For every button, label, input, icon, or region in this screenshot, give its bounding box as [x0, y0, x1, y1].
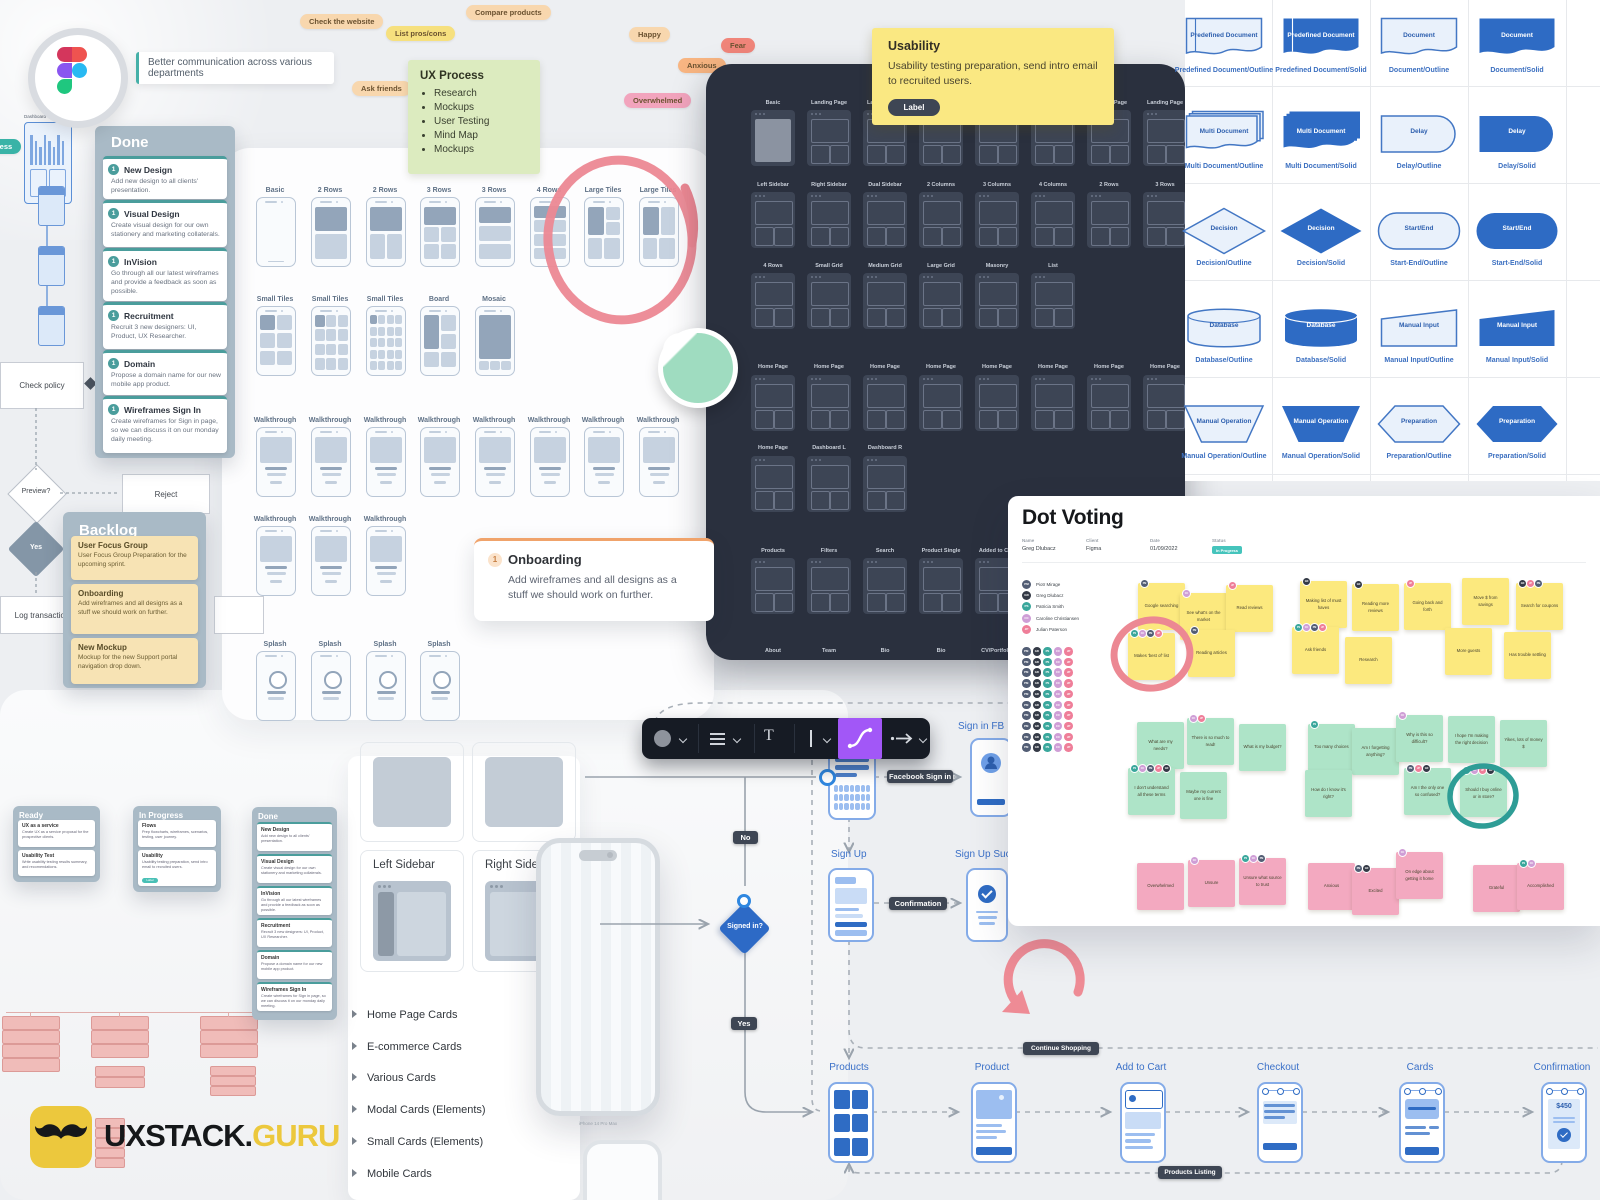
sitemap-node[interactable] — [2, 1044, 60, 1058]
flow-screen-confirmation[interactable]: $450 — [1541, 1082, 1587, 1163]
vote-dot[interactable]: PM — [1022, 722, 1031, 731]
status-bar — [265, 655, 276, 657]
vote-dot[interactable]: JP — [1064, 733, 1073, 742]
status-bar — [320, 201, 331, 203]
vote-dot[interactable]: PM — [1022, 711, 1031, 720]
wire-block — [441, 244, 456, 259]
flow-pill-no[interactable]: No — [733, 831, 758, 844]
dark-wireframe-thumb-filters[interactable] — [807, 558, 851, 614]
sticky-note-communication[interactable]: Better communication across various depa… — [136, 52, 334, 84]
shape-caption: Preparation/Outline — [1387, 453, 1452, 460]
dark-wireframe-thumb-home-page[interactable] — [1031, 375, 1075, 431]
shape-label: Document — [1472, 32, 1562, 39]
wire-block — [811, 384, 850, 408]
shape-caption: Decision/Outline — [1196, 260, 1251, 267]
dark-wireframe-thumb-masonry[interactable] — [975, 273, 1019, 329]
sticky-note-green[interactable]: Too many choices — [1308, 724, 1355, 771]
shape-caption: Manual Input/Solid — [1486, 357, 1548, 364]
sticky-note-pink[interactable]: On edge about getting it home — [1396, 852, 1443, 899]
backlog-card[interactable]: New MockupMockup for the new Support por… — [71, 638, 198, 684]
flow-node-connector[interactable] — [819, 769, 836, 786]
flow-pill-products-listing[interactable]: Products Listing — [1158, 1166, 1222, 1179]
vote-dot[interactable]: JP — [1064, 701, 1073, 710]
wireframe-thumb-2-rows[interactable] — [311, 197, 351, 267]
sitemap-node[interactable] — [210, 1066, 256, 1076]
vote-dot[interactable]: GD — [1033, 701, 1042, 710]
flowchart-shape-maninput-solid[interactable]: Manual Input — [1472, 304, 1562, 352]
sticky-note-pink[interactable]: Anxious — [1308, 863, 1355, 910]
sticky-note-green[interactable]: Why is this so difficult? — [1396, 715, 1443, 762]
mini-card[interactable]: DomainPropose a domain name for our new … — [257, 950, 332, 979]
flowchart-shape-predefined-outline[interactable]: Predefined Document — [1179, 14, 1269, 62]
key — [866, 785, 870, 792]
mini-card-title: Recruitment — [261, 923, 328, 929]
line-tool-icon[interactable] — [810, 730, 812, 747]
flow-pill-facebook-sign-in[interactable]: Facebook Sign in — [887, 770, 953, 783]
wireframe-thumb-walkthrough[interactable] — [584, 427, 624, 497]
sticky-note-yellow[interactable]: Makes 'best of' list — [1128, 633, 1175, 680]
sticky-note-green[interactable]: Yikes, lots of money $ — [1500, 720, 1547, 767]
usability-note[interactable]: Usability Usability testing preparation,… — [872, 28, 1114, 125]
status-dot — [391, 201, 393, 203]
vote-dot[interactable]: PS — [1043, 701, 1052, 710]
sticky-note-green[interactable]: I don't understand all these terms — [1128, 768, 1175, 815]
wireframe-thumb-small-tiles[interactable] — [256, 306, 296, 376]
wireframe-thumb-small-tiles[interactable] — [311, 306, 351, 376]
vote-dot[interactable]: PS — [1043, 679, 1052, 688]
stepper-dot — [1293, 1088, 1300, 1095]
flowchart-shape-decision-solid[interactable]: Decision — [1276, 207, 1366, 255]
menu-item-various-cards[interactable]: Various Cards — [352, 1072, 436, 1084]
menu-item-home-page-cards[interactable]: Home Page Cards — [352, 1009, 458, 1021]
vote-dot[interactable]: PM — [1022, 690, 1031, 699]
ux-process-note[interactable]: UX Process ResearchMockupsUser TestingMi… — [408, 60, 540, 174]
sitemap-node[interactable] — [210, 1076, 256, 1086]
dark-wireframe-thumb-home-page[interactable] — [807, 375, 851, 431]
flowchart-shape-document-solid[interactable]: Document — [1472, 14, 1562, 62]
dark-wireframe-thumb-product-single[interactable] — [919, 558, 963, 614]
wireframe-thumb-walkthrough[interactable] — [366, 427, 406, 497]
wireframe-thumb-small-tiles[interactable] — [366, 306, 406, 376]
done-card[interactable]: 1RecruitmentRecruit 3 new designers: UI,… — [103, 302, 227, 349]
wire-block — [923, 567, 962, 591]
flowchart-shape-multidoc-outline[interactable]: Multi Document — [1179, 110, 1269, 158]
flow-pill-continue-shopping[interactable]: Continue Shopping — [1023, 1042, 1099, 1055]
flowchart-shape-document-outline[interactable]: Document — [1374, 14, 1464, 62]
wire-block — [1054, 145, 1074, 164]
vote-dot[interactable]: JP — [1064, 743, 1073, 752]
sticky-note-green[interactable]: Am I forgetting anything? — [1352, 728, 1399, 775]
wireframe-thumb-walkthrough[interactable] — [420, 427, 460, 497]
flowchart-shape-multidoc-solid[interactable]: Multi Document — [1276, 110, 1366, 158]
flowchart-shape-database-solid[interactable]: Database — [1276, 304, 1366, 352]
dark-wireframe-thumb-large-grid[interactable] — [919, 273, 963, 329]
dark-wireframe-thumb-home-page[interactable] — [919, 375, 963, 431]
tag-check-website[interactable]: Check the website — [300, 14, 383, 29]
done-card[interactable]: 1Wireframes Sign InCreate wireframes for… — [103, 396, 227, 453]
wire-block — [942, 593, 962, 612]
dark-wireframe-thumb-3-columns[interactable] — [975, 192, 1019, 248]
flow-screen-checkout[interactable] — [1257, 1082, 1303, 1163]
flowchart-shape-database-outline[interactable]: Database — [1179, 304, 1269, 352]
card-title: Domain — [124, 359, 155, 369]
wireframe-thumb-splash[interactable] — [256, 651, 296, 721]
wireframe-thumb-walkthrough[interactable] — [366, 526, 406, 596]
check-policy-node[interactable]: Check policy — [0, 362, 84, 409]
dark-wireframe-thumb-dashboard-l[interactable] — [807, 456, 851, 512]
status-bar — [265, 201, 276, 203]
sitemap-node[interactable] — [91, 1016, 149, 1030]
product-tile — [852, 1138, 868, 1156]
text-tool-icon[interactable]: T — [764, 727, 774, 745]
vote-dot[interactable]: GD — [1033, 647, 1042, 656]
sticky-note-green[interactable]: I hope I'm making the right decision — [1448, 716, 1495, 763]
sitemap-node[interactable] — [95, 1158, 125, 1168]
wireframe-thumb-splash[interactable] — [311, 651, 351, 721]
vote-dot[interactable]: PS — [1043, 658, 1052, 667]
vote-dot[interactable]: JP — [1064, 679, 1073, 688]
sticky-note-yellow[interactable]: Ask friends — [1292, 627, 1339, 674]
menu-item-mobile-cards[interactable]: Mobile Cards — [352, 1168, 432, 1180]
vote-dot[interactable]: GD — [1033, 668, 1042, 677]
vote-dot[interactable]: JP — [1064, 658, 1073, 667]
dark-wireframe-thumb-4-columns[interactable] — [1031, 192, 1075, 248]
product-tile — [834, 1114, 850, 1132]
vote-dot[interactable]: PS — [1043, 743, 1052, 752]
sticky-note-green[interactable]: Should I buy online or in store? — [1460, 770, 1507, 817]
dark-wireframe-label: Landing Page — [811, 100, 847, 106]
dark-wireframe-thumb-list[interactable] — [1031, 273, 1075, 329]
cards-grid-cell-left-sidebar[interactable]: Left Sidebar — [360, 850, 464, 972]
vote-dot[interactable]: CC — [1054, 647, 1063, 656]
mini-card[interactable]: FlowsPrep flowcharts, wireframes, scenar… — [138, 820, 216, 847]
tag-compare-products[interactable]: Compare products — [466, 5, 551, 20]
onboarding-note[interactable]: 1OnboardingAdd wireframes and all design… — [474, 538, 714, 621]
menu-item-small-cards-elements-[interactable]: Small Cards (Elements) — [352, 1136, 483, 1148]
sticky-note-green[interactable]: Am I the only one so confused? — [1404, 768, 1451, 815]
mini-card[interactable]: New DesignAdd new design to all clients'… — [257, 822, 332, 851]
wire-block — [322, 473, 341, 476]
wire-block — [923, 201, 962, 225]
backlog-card[interactable]: OnboardingAdd wireframes and all designs… — [71, 584, 198, 634]
tag-ask-friends[interactable]: Ask friends — [352, 81, 411, 96]
card-number-badge: 1 — [108, 208, 119, 219]
dark-wireframe-thumb-medium-grid[interactable] — [863, 273, 907, 329]
vote-dot[interactable]: PM — [1022, 658, 1031, 667]
participant-avatar: PM — [1022, 580, 1031, 589]
wireframe-thumb-walkthrough[interactable] — [475, 427, 515, 497]
wire-block — [755, 282, 794, 306]
sticky-note-yellow[interactable]: Research — [1345, 637, 1392, 684]
cancel-node[interactable] — [214, 596, 264, 634]
status-dot — [336, 201, 338, 203]
vote-dot[interactable]: PS — [1043, 668, 1052, 677]
sticky-note-yellow[interactable]: Going back and forth — [1404, 583, 1451, 630]
wire-block — [811, 282, 850, 306]
sticky-note-green[interactable]: What are my needs? — [1137, 722, 1184, 769]
vote-dot[interactable]: JP — [1064, 668, 1073, 677]
sitemap-node[interactable] — [2, 1016, 60, 1030]
sticky-note-pink[interactable]: Unsure what source to trust — [1239, 858, 1286, 905]
sticky-note-green[interactable]: How do I know it's right? — [1305, 770, 1352, 817]
vote-dot[interactable]: GD — [1033, 733, 1042, 742]
dark-wireframe-thumb-products[interactable] — [751, 558, 795, 614]
wireframe-thumb-basic[interactable] — [256, 197, 296, 267]
dark-wireframe-label: Dashboard L — [812, 445, 846, 451]
flowchart-shape-preparation-solid[interactable]: Preparation — [1472, 400, 1562, 448]
iphone-mockup-partial[interactable] — [583, 1140, 662, 1200]
wireframe-thumb-mosaic[interactable] — [475, 306, 515, 376]
flow-pill-yes[interactable]: Yes — [731, 1017, 757, 1030]
dark-wireframe-thumb-dual-sidebar[interactable] — [863, 192, 907, 248]
done-card[interactable]: 1DomainPropose a domain name for our new… — [103, 350, 227, 395]
vote-dot[interactable]: GD — [1033, 679, 1042, 688]
brand-black: UXSTACK. — [104, 1118, 252, 1153]
sticky-note-pink[interactable]: Unsure — [1188, 860, 1235, 907]
dark-wireframe-thumb-2-columns[interactable] — [919, 192, 963, 248]
backlog-card[interactable]: User Focus GroupUser Focus Group Prepara… — [71, 536, 198, 580]
flowchart-shape-startend-outline[interactable]: Start/End — [1374, 207, 1464, 255]
flowchart-shape-maninput-outline[interactable]: Manual Input — [1374, 304, 1464, 352]
vote-dot[interactable]: PS — [1043, 733, 1052, 742]
chevron-down-icon[interactable] — [823, 735, 831, 743]
sticky-note-yellow[interactable]: Search for coupons — [1516, 583, 1563, 630]
figma-toolbar[interactable]: T — [642, 718, 930, 759]
tag-happy[interactable]: Happy — [629, 27, 670, 42]
cards-grid-cell[interactable] — [472, 742, 576, 842]
dark-wireframe-thumb-left-sidebar[interactable] — [751, 192, 795, 248]
status-dot — [500, 310, 502, 312]
iphone-mockup[interactable] — [536, 838, 660, 1116]
curve-tool-active[interactable] — [838, 718, 882, 759]
done-column-title: Done — [111, 134, 149, 151]
reject-node[interactable]: Reject — [122, 474, 210, 514]
chevron-down-icon[interactable] — [733, 735, 741, 743]
mini-screen-wireframe[interactable] — [38, 186, 65, 226]
dark-wireframe-thumb-basic[interactable] — [751, 110, 795, 166]
mini-screen-wireframe[interactable] — [38, 246, 65, 286]
shape-label: Manual Input — [1374, 322, 1464, 329]
chart-bar — [57, 135, 60, 165]
flowchart-shape-decision-outline[interactable]: Decision — [1179, 207, 1269, 255]
vote-dot[interactable]: PM — [1022, 743, 1031, 752]
wire-block — [755, 201, 794, 225]
sitemap-node[interactable] — [95, 1077, 145, 1088]
mini-card[interactable]: Usability TestWrite usability testing re… — [18, 850, 95, 876]
red-circle-annotation[interactable] — [535, 148, 705, 333]
sticky-note-yellow[interactable]: Has trouble settling — [1504, 632, 1551, 679]
dark-wireframe-thumb-4-rows[interactable] — [751, 273, 795, 329]
dark-wireframe-thumb-home-page[interactable] — [751, 375, 795, 431]
image — [1125, 1112, 1160, 1129]
sticky-note-pink[interactable]: Accomplished — [1517, 863, 1564, 910]
vote-dot[interactable]: PS — [1043, 722, 1052, 731]
done-card[interactable]: 1New DesignAdd new design to all clients… — [103, 156, 227, 199]
wireframe-thumb-2-rows[interactable] — [366, 197, 406, 267]
tag-process[interactable]: Process — [0, 139, 21, 154]
fill-color-swatch[interactable] — [654, 730, 671, 747]
wire-block — [998, 308, 1018, 327]
wireframe-thumb-splash[interactable] — [420, 651, 460, 721]
flowchart-shape-manop-outline[interactable]: Manual Operation — [1179, 400, 1269, 448]
vote-dot[interactable]: JP — [1064, 690, 1073, 699]
dark-wireframe-thumb-home-page[interactable] — [863, 375, 907, 431]
vote-dot[interactable]: PS — [1043, 711, 1052, 720]
flowchart-shape-manop-solid[interactable]: Manual Operation — [1276, 400, 1366, 448]
tag-fear[interactable]: Fear — [721, 38, 755, 53]
vote-dot[interactable]: PS — [1043, 647, 1052, 656]
sticky-note-yellow[interactable]: Reading articles — [1188, 630, 1235, 677]
sticky-note-yellow[interactable]: More guests — [1445, 628, 1492, 675]
sitemap-node[interactable] — [91, 1030, 149, 1044]
sticky-note-green[interactable]: Maybe my current one is fine — [1180, 772, 1227, 819]
vote-dot[interactable]: CC — [1054, 679, 1063, 688]
dark-wireframe-thumb-small-grid[interactable] — [807, 273, 851, 329]
wire-block — [867, 227, 887, 246]
vote-dot[interactable]: GD — [1033, 743, 1042, 752]
vote-dot[interactable]: PM — [1022, 733, 1031, 742]
wireframe-thumb-walkthrough[interactable] — [256, 526, 296, 596]
menu-item-modal-cards-elements-[interactable]: Modal Cards (Elements) — [352, 1104, 486, 1116]
sitemap-node[interactable] — [2, 1058, 60, 1072]
flowchart-shape-delay-solid[interactable]: Delay — [1472, 110, 1562, 158]
vote-dot[interactable]: JP — [1064, 647, 1073, 656]
dark-wireframe-thumb-right-sidebar[interactable] — [807, 192, 851, 248]
mini-card[interactable]: InVisionGo through all our latest wirefr… — [257, 886, 332, 915]
sticky-note-yellow[interactable]: Read reviews — [1226, 585, 1273, 632]
wireframe-thumb-3-rows[interactable] — [475, 197, 515, 267]
vote-dot[interactable]: PM — [1022, 679, 1031, 688]
vote-dot[interactable]: CC — [1054, 743, 1063, 752]
stroke-style-icon[interactable] — [710, 733, 725, 735]
flow-screen-cards[interactable] — [1399, 1082, 1445, 1163]
figma-canvas[interactable]: Basic2 Rows2 Rows3 Rows3 Rows4 RowsLarge… — [0, 0, 1600, 1200]
cards-grid-cell[interactable] — [360, 742, 464, 842]
flowchart-shape-predefined-solid[interactable]: Predefined Document — [1276, 14, 1366, 62]
stroke-style-icon[interactable] — [710, 743, 725, 745]
dark-wireframe-thumb-search[interactable] — [863, 558, 907, 614]
wireframe-thumb-walkthrough[interactable] — [639, 427, 679, 497]
flow-screen-sign-up-success[interactable] — [966, 868, 1008, 942]
dark-wireframe-thumb-home-page[interactable] — [975, 375, 1019, 431]
label-pill[interactable]: Label — [888, 99, 940, 116]
flow-node-diamond-top[interactable] — [737, 894, 751, 908]
dark-wireframe-thumb-2-rows[interactable] — [1087, 192, 1131, 248]
flowchart-shape-preparation-outline[interactable]: Preparation — [1374, 400, 1464, 448]
shape-label: Decision — [1276, 225, 1366, 232]
sitemap-node[interactable] — [200, 1016, 258, 1030]
wireframe-thumb-board[interactable] — [420, 306, 460, 376]
cell-preview — [373, 881, 451, 961]
sitemap-node[interactable] — [91, 1044, 149, 1058]
sitemap-node[interactable] — [200, 1030, 258, 1044]
avatar-body — [985, 763, 997, 769]
dark-wireframe-thumb-home-page[interactable] — [1087, 375, 1131, 431]
flow-screen-add-to-cart[interactable] — [1120, 1082, 1166, 1163]
vote-dot[interactable]: PM — [1022, 668, 1031, 677]
sticky-note-green[interactable]: There is so much to read! — [1187, 718, 1234, 765]
wireframe-thumb-walkthrough[interactable] — [311, 427, 351, 497]
mini-card[interactable]: UX as a serviceCreate UX as a service pr… — [18, 820, 95, 847]
chevron-down-icon[interactable] — [919, 735, 927, 743]
sticky-note-yellow[interactable]: Reading more reviews — [1352, 584, 1399, 631]
mini-card[interactable]: Wireframes Sign InCreate wireframes for … — [257, 982, 332, 1011]
browser-dots — [811, 459, 813, 461]
flow-pill-confirmation[interactable]: Confirmation — [889, 897, 947, 910]
dark-wireframe-label: Search — [876, 548, 894, 554]
vote-dot[interactable]: JP — [1064, 711, 1073, 720]
vote-dot-on-note: CC — [1398, 848, 1407, 857]
done-card[interactable]: 1InVisionGo through all our latest wiref… — [103, 248, 227, 301]
sitemap-node[interactable] — [210, 1086, 256, 1096]
vote-dot[interactable]: PM — [1022, 647, 1031, 656]
dark-wireframe-thumb-dashboard-r[interactable] — [863, 456, 907, 512]
vote-dot[interactable]: PS — [1043, 690, 1052, 699]
sticky-note-yellow[interactable]: Google searching — [1138, 583, 1185, 630]
vote-dot[interactable]: CC — [1054, 668, 1063, 677]
chevron-down-icon[interactable] — [679, 735, 687, 743]
stroke-style-icon[interactable] — [710, 738, 725, 740]
sticky-note-yellow[interactable]: Making list of must haves — [1300, 581, 1347, 628]
wire-block — [387, 361, 394, 370]
sitemap-node[interactable] — [2, 1030, 60, 1044]
vote-dot-on-note: JP — [1228, 581, 1237, 590]
vote-dot[interactable]: CC — [1054, 711, 1063, 720]
vote-dot[interactable]: PM — [1022, 701, 1031, 710]
sticky-note-green[interactable]: What is my budget? — [1239, 724, 1286, 771]
arrow-tool-icon[interactable] — [890, 730, 916, 747]
flowchart-shape-startend-solid[interactable]: Start/End — [1472, 207, 1562, 255]
done-card[interactable]: 1Visual DesignCreate visual design for o… — [103, 200, 227, 247]
mini-label-pill[interactable]: Label — [142, 878, 158, 883]
wire-block — [998, 410, 1018, 429]
sitemap-node[interactable] — [95, 1066, 145, 1077]
sticky-note-pink[interactable]: Overwhelmed — [1137, 863, 1184, 910]
sticky-note-yellow[interactable]: Move $ from savings — [1462, 578, 1509, 625]
wire-block — [867, 201, 906, 225]
mini-card[interactable]: RecruitmentRecruit 3 new designers: UI, … — [257, 918, 332, 947]
mini-dashboard-label: Dashboard — [24, 114, 46, 119]
dark-wireframe-thumb-home-page[interactable] — [751, 456, 795, 512]
flow-screen-sign-in-fb[interactable] — [970, 738, 1012, 817]
wireframe-thumb-3-rows[interactable] — [420, 197, 460, 267]
wireframe-thumb-walkthrough[interactable] — [256, 427, 296, 497]
wireframe-thumb-walkthrough[interactable] — [530, 427, 570, 497]
tag-overwhelmed[interactable]: Overwhelmed — [624, 93, 691, 108]
tag-list-pros-cons[interactable]: List pros/cons — [386, 26, 455, 41]
dark-wireframe-thumb-landing-page[interactable] — [807, 110, 851, 166]
flow-screen-sign-up[interactable] — [828, 868, 874, 942]
mini-card[interactable]: UsabilityUsability testing preparation, … — [138, 850, 216, 886]
sticky-note-pink[interactable]: Excited — [1352, 868, 1399, 915]
wire-block — [886, 308, 906, 327]
browser-dots — [923, 276, 925, 278]
status-dot — [609, 431, 611, 433]
wireframe-thumb-walkthrough[interactable] — [311, 526, 351, 596]
browser-dots — [1091, 378, 1093, 380]
flow-screen-product[interactable] — [971, 1082, 1017, 1163]
mini-screen-wireframe[interactable] — [38, 306, 65, 346]
sticky-note-pink[interactable]: Grateful — [1473, 865, 1520, 912]
vote-dot[interactable]: GD — [1033, 711, 1042, 720]
wireframe-label: 2 Rows — [318, 187, 343, 194]
wireframe-thumb-splash[interactable] — [366, 651, 406, 721]
flowchart-shape-delay-outline[interactable]: Delay — [1374, 110, 1464, 158]
menu-item-e-commerce-cards[interactable]: E-commerce Cards — [352, 1041, 462, 1053]
sitemap-node[interactable] — [200, 1044, 258, 1058]
mini-card[interactable]: Visual DesignCreate visual design for ou… — [257, 854, 332, 883]
flow-screen-products[interactable] — [828, 1082, 874, 1163]
